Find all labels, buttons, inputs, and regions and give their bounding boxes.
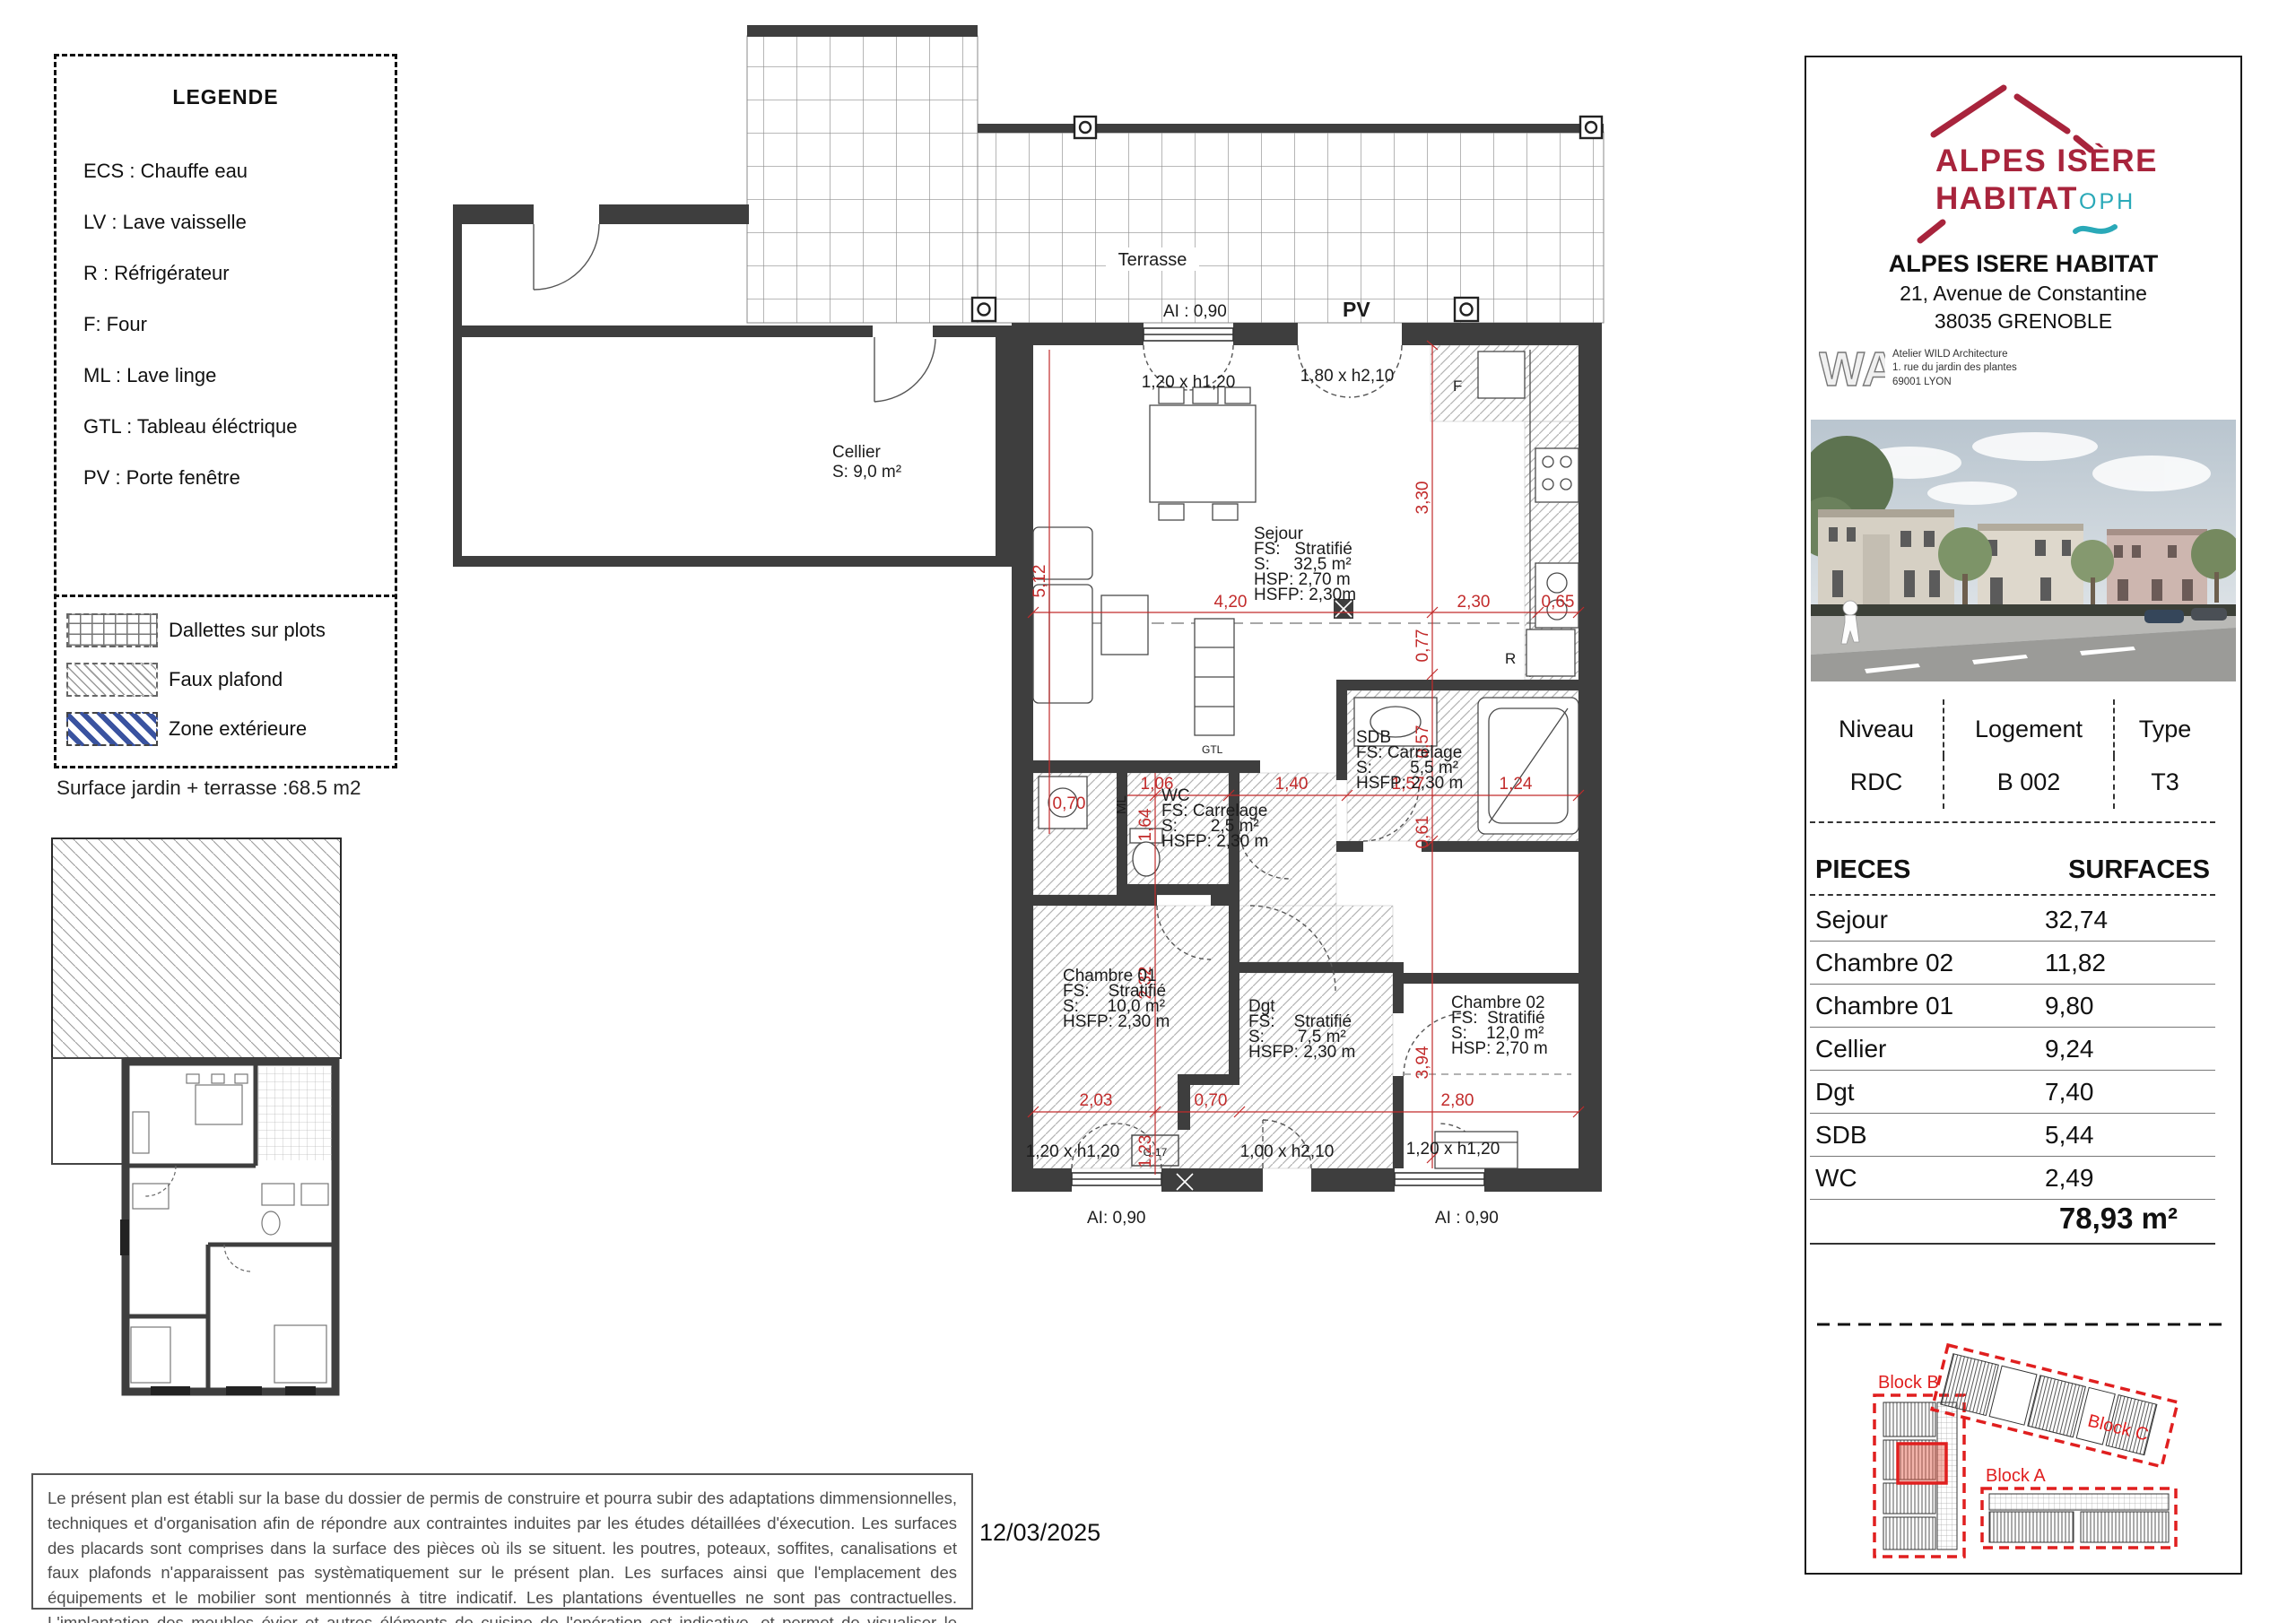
dim-070-closet: 0,70 xyxy=(1053,794,1086,813)
table-row: Sejour32,74 xyxy=(1810,898,2215,942)
logo-line2: HABITAT xyxy=(1935,181,2078,216)
terrace: Terrasse xyxy=(747,25,1604,323)
info-header-niveau: Niveau xyxy=(1810,699,1944,756)
info-value-type: T3 xyxy=(2115,756,2215,809)
pv-dim: 1,80 x h2,10 xyxy=(1300,367,1395,386)
project-photo xyxy=(1811,420,2236,681)
f-label: F xyxy=(1453,378,1462,395)
svg-text:HSP: 2,70 m: HSP: 2,70 m xyxy=(1451,1039,1548,1058)
unit-info-table: Niveau Logement Type RDC B 002 T3 xyxy=(1810,699,2215,823)
dim-070: 0,70 xyxy=(1195,1091,1228,1110)
cellier-label: Cellier xyxy=(832,443,882,462)
disclaimer-box: Le présent plan est établi sur la base d… xyxy=(31,1473,973,1610)
ml-label: ML xyxy=(1114,795,1129,814)
info-header-type: Type xyxy=(2115,699,2215,756)
table-row: SDB5,44 xyxy=(1810,1114,2215,1157)
dim-061: 0,61 xyxy=(1413,816,1432,849)
org-block: ALPES ISERE HABITAT 21, Avenue de Consta… xyxy=(1806,247,2240,336)
dim-280: 2,80 xyxy=(1441,1091,1474,1110)
org-address: 21, Avenue de Constantine xyxy=(1806,280,2240,308)
dim-124: 1,24 xyxy=(1500,775,1533,794)
highlighted-unit xyxy=(1898,1444,1946,1483)
info-header-logement: Logement xyxy=(1944,699,2115,756)
dim-203: 2,03 xyxy=(1080,1091,1113,1110)
win-bottom-left-dim: 1,20 x h1,20 xyxy=(1026,1142,1120,1161)
cellier-area: S: 9,0 m² xyxy=(832,463,901,482)
dim-230: 2,30 xyxy=(1457,593,1491,612)
wave-icon xyxy=(2075,227,2115,231)
svg-text:HSFP: 2,30 m: HSFP: 2,30 m xyxy=(1161,832,1268,851)
dim-420: 4,20 xyxy=(1214,593,1248,612)
architect-line: 1. rue du jardin des plantes xyxy=(1892,361,2017,376)
pieces-table: Sejour32,74 Chambre 0211,82 Chambre 019,… xyxy=(1810,898,2215,1200)
terrasse-label: Terrasse xyxy=(1118,250,1187,270)
architect-line: 69001 LYON xyxy=(1892,376,2017,390)
table-row: WC2,49 xyxy=(1810,1157,2215,1200)
pieces-table-header: PIECES SURFACES xyxy=(1810,850,2215,896)
dim-065: 0,65 xyxy=(1542,593,1575,612)
block-c-group: Block C xyxy=(1932,1345,2178,1467)
pieces-header: PIECES xyxy=(1815,855,1910,885)
win-bottom-right-dim: 1,20 x h1,20 xyxy=(1406,1140,1500,1159)
r-label: R xyxy=(1505,650,1516,667)
svg-text:HSFP: 2,30 m: HSFP: 2,30 m xyxy=(1063,1012,1170,1031)
svg-text:HSFP: 2,30 m: HSFP: 2,30 m xyxy=(1356,774,1463,793)
blocks-keyplan: Block B xyxy=(1806,1320,2240,1574)
info-value-niveau: RDC xyxy=(1810,756,1944,809)
sejour-label: Sejour FS: Stratifié S: 32,5 m² HSP: 2,7… xyxy=(1254,525,1356,604)
svg-text:WA: WA xyxy=(1819,343,1885,395)
surfaces-header: SURFACES xyxy=(2068,855,2210,885)
alpes-isere-habitat-logo: ALPES ISÈRE HABITAT OPH xyxy=(1871,77,2176,252)
table-row: Cellier9,24 xyxy=(1810,1028,2215,1071)
wa-monogram-icon: WA xyxy=(1819,343,1885,395)
table-row: Dgt7,40 xyxy=(1810,1071,2215,1114)
plan-sheet: LEGENDE ECS : Chauffe eau LV : Lave vais… xyxy=(0,0,2296,1623)
info-value-logement: B 002 xyxy=(1944,756,2115,809)
total-surface: 78,93 m² xyxy=(1810,1194,2215,1245)
table-row: Chambre 0211,82 xyxy=(1810,942,2215,985)
gtl-label: GTL xyxy=(1202,743,1223,756)
win-top-dim: 1,20 x h1,20 xyxy=(1142,373,1236,392)
org-name: ALPES ISERE HABITAT xyxy=(1806,247,2240,280)
chambre01-label: Chambre 01 FS: Stratifié S: 10,0 m² HSFP… xyxy=(1063,967,1170,1031)
title-block-panel: ALPES ISÈRE HABITAT OPH ALPES ISERE HABI… xyxy=(1805,56,2242,1575)
svg-text:HSFP: 2,30m: HSFP: 2,30m xyxy=(1254,586,1356,604)
table-row: Chambre 019,80 xyxy=(1810,985,2215,1028)
dim-077: 0,77 xyxy=(1413,629,1432,663)
ai-top-label: AI : 0,90 xyxy=(1163,302,1227,321)
org-city: 38035 GRENOBLE xyxy=(1806,308,2240,335)
block-a-label: Block A xyxy=(1986,1466,2046,1486)
architect-block: WA Atelier WILD Architecture 1. rue du j… xyxy=(1819,343,2017,395)
dim-140: 1,40 xyxy=(1275,775,1309,794)
dim-512: 5,12 xyxy=(1031,565,1049,598)
door-bottom-dim: 1,00 x h2,10 xyxy=(1240,1142,1335,1161)
logo-oph: OPH xyxy=(2079,189,2135,214)
date-label: 12/03/2025 xyxy=(979,1519,1100,1547)
logo-line1: ALPES ISÈRE xyxy=(1935,143,2158,178)
dim-164: 1,64 xyxy=(1136,808,1155,841)
chambre02-label: Chambre 02 FS: Stratifié S: 12,0 m² HSP:… xyxy=(1451,994,1548,1058)
block-b-label: Block B xyxy=(1878,1373,1939,1393)
architect-line: Atelier WILD Architecture xyxy=(1892,348,2017,362)
dim-330: 3,30 xyxy=(1413,482,1432,515)
dim-394: 3,94 xyxy=(1413,1046,1432,1079)
dim-123: 1,23 xyxy=(1136,1135,1155,1168)
pv-label: PV xyxy=(1343,298,1370,321)
svg-text:HSFP: 2,30 m: HSFP: 2,30 m xyxy=(1248,1043,1355,1062)
ai-bottom-right-label: AI : 0,90 xyxy=(1435,1209,1499,1228)
ai-bottom-left-label: AI: 0,90 xyxy=(1087,1209,1146,1228)
mini-site-plan xyxy=(52,838,341,1395)
